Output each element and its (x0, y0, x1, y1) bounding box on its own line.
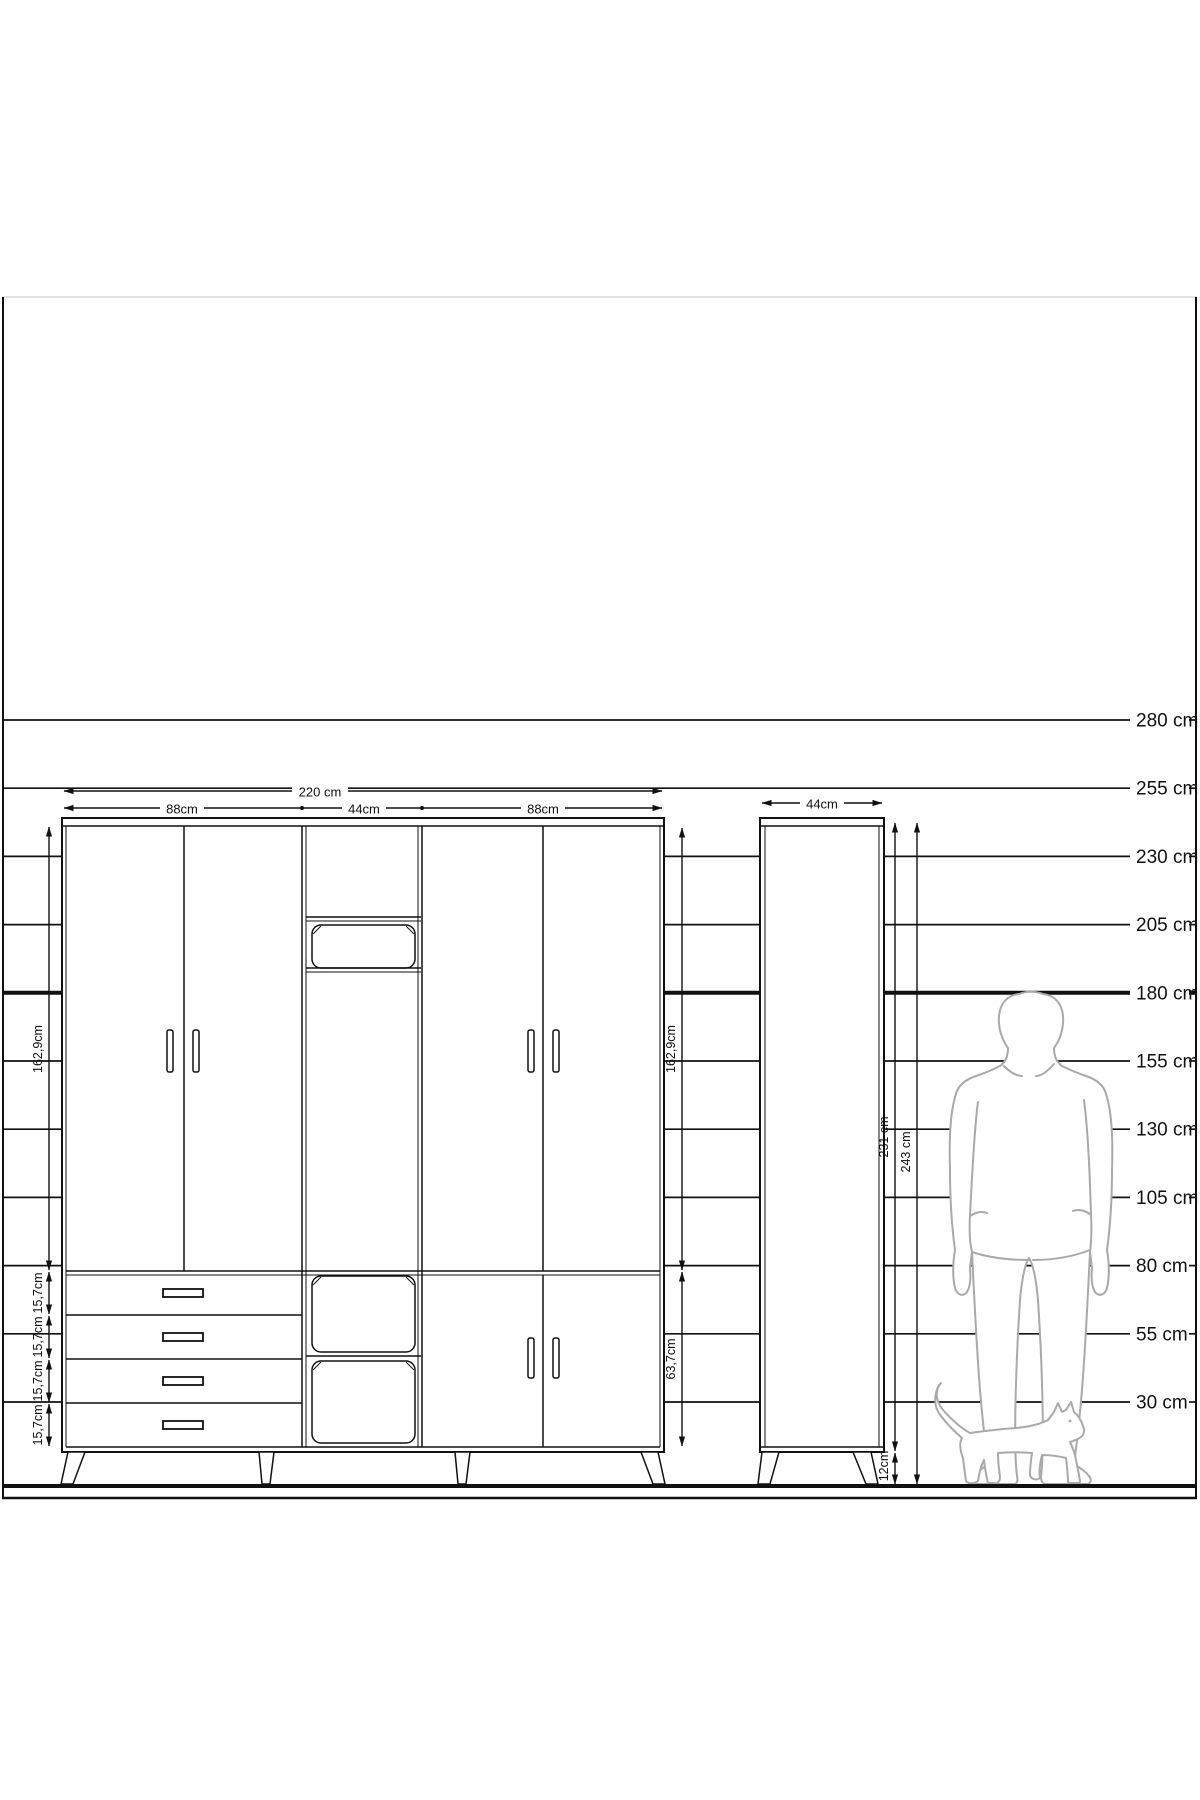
dim-label-cabinet-body-height: 231 cm (877, 1117, 891, 1158)
dim-label-section-left: 88cm (166, 802, 198, 817)
cabinet-body (760, 818, 884, 1452)
drawer-handle-3 (163, 1377, 203, 1385)
left-door-handle-b (193, 1030, 199, 1072)
wardrobe-leg-2 (259, 1452, 274, 1484)
lower-door-handle-b (553, 1338, 559, 1378)
scale-label-30-cm: 30 cm (1136, 1393, 1188, 1414)
left-door-handle-a (167, 1030, 173, 1072)
dim-label-right-door-height: 162,9cm (664, 1025, 678, 1073)
drawer-handle-4 (163, 1421, 203, 1429)
drawer-height-dims: 15,7cm15,7cm15,7cm15,7cm (31, 1272, 49, 1446)
lower-door-handle-a (528, 1338, 534, 1378)
dim-label-cabinet-total-height: 243 cm (899, 1132, 913, 1173)
dim-label-drawer-1: 15,7cm (31, 1273, 45, 1314)
scale-label-280-cm: 280 cm (1136, 711, 1198, 732)
drawer-handle-2 (163, 1333, 203, 1341)
scale-label-230-cm: 230 cm (1136, 847, 1198, 868)
dim-label-drawer-2: 15,7cm (31, 1317, 45, 1358)
wardrobe-leg-4 (641, 1452, 665, 1484)
drawing-canvas: 280 cm255 cm230 cm205 cm180 cm155 cm130 … (0, 0, 1200, 1800)
dim-label-section-middle: 44cm (348, 802, 380, 817)
man-silhouette (950, 992, 1113, 1484)
right-door-handle-a (528, 1030, 534, 1072)
dim-label-lower-door-height: 63,7cm (664, 1339, 678, 1380)
scale-label-155-cm: 155 cm (1136, 1052, 1198, 1073)
dim-label-drawer-3: 15,7cm (31, 1361, 45, 1402)
cabinet-leg-left (758, 1452, 779, 1484)
wardrobe-drawing (61, 818, 665, 1484)
mid-basket-lower-1 (312, 1276, 415, 1352)
dim-label-cabinet-width: 44cm (806, 797, 838, 812)
dim-label-cabinet-leg-height: 12cm (877, 1451, 891, 1482)
wardrobe-leg-1 (61, 1452, 85, 1484)
scale-label-180-cm: 180 cm (1136, 983, 1198, 1004)
dim-label-drawer-4: 15,7cm (31, 1405, 45, 1446)
side-cabinet-drawing (758, 818, 884, 1484)
scale-label-255-cm: 255 cm (1136, 779, 1198, 800)
scale-label-80-cm: 80 cm (1136, 1256, 1188, 1277)
scale-label-130-cm: 130 cm (1136, 1120, 1198, 1141)
technical-drawing-page: 280 cm255 cm230 cm205 cm180 cm155 cm130 … (0, 0, 1200, 1800)
dim-label-left-door-height: 162,9cm (31, 1025, 45, 1073)
dim-tick (420, 806, 424, 810)
scale-label-205-cm: 205 cm (1136, 915, 1198, 936)
mid-basket-top (312, 925, 415, 968)
cabinet-leg-right (853, 1452, 878, 1484)
cat-eye (1069, 1420, 1072, 1423)
scale-label-55-cm: 55 cm (1136, 1324, 1188, 1345)
dim-tick (300, 806, 304, 810)
drawer-handle-1 (163, 1289, 203, 1297)
dim-label-section-right: 88cm (527, 802, 559, 817)
dim-label-total-width: 220 cm (299, 785, 342, 800)
right-door-handle-b (553, 1030, 559, 1072)
scale-label-105-cm: 105 cm (1136, 1188, 1198, 1209)
wardrobe-body (62, 818, 664, 1452)
mid-basket-lower-2 (312, 1361, 415, 1443)
man-outline (950, 992, 1113, 1484)
wardrobe-leg-3 (455, 1452, 470, 1484)
